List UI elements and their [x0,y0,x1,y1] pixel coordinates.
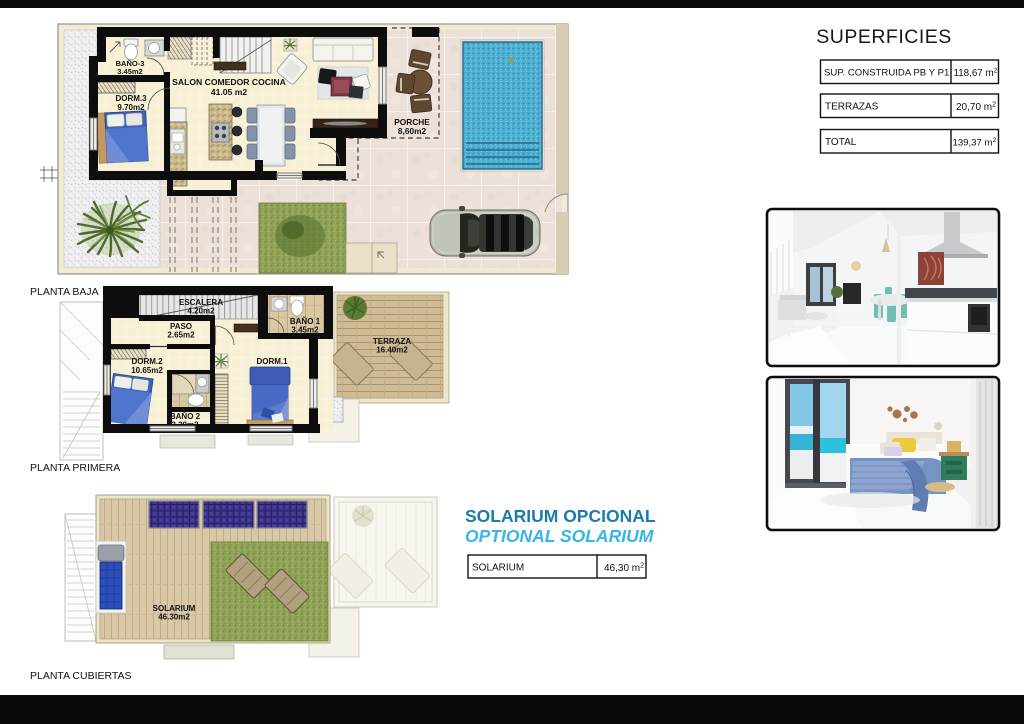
svg-text:DORM.3: DORM.3 [115,94,147,103]
svg-text:DORM.1: DORM.1 [256,357,288,366]
svg-text:PLANTA PRIMERA: PLANTA PRIMERA [30,462,120,474]
svg-text:SOLARIUM OPCIONAL: SOLARIUM OPCIONAL [465,506,656,526]
svg-text:46,30 m2: 46,30 m2 [604,563,644,575]
svg-text:DORM.2: DORM.2 [131,357,163,366]
svg-text:OPTIONAL SOLARIUM: OPTIONAL SOLARIUM [465,526,654,546]
svg-text:TOTAL: TOTAL [825,137,857,148]
svg-text:118,67 m2: 118,67 m2 [954,68,998,80]
svg-text:PLANTA CUBIERTAS: PLANTA CUBIERTAS [30,670,132,682]
svg-text:2.65m2: 2.65m2 [167,331,195,340]
svg-text:16.40m2: 16.40m2 [376,346,408,355]
svg-text:10.65m2: 10.65m2 [131,366,163,375]
svg-text:20,70 m2: 20,70 m2 [956,102,996,114]
svg-text:3.45m2: 3.45m2 [117,67,142,76]
svg-text:8,60m2: 8,60m2 [398,126,427,136]
svg-text:4.20m2: 4.20m2 [187,307,215,316]
svg-text:PLANTA BAJA: PLANTA BAJA [30,286,99,298]
svg-text:3.45m2: 3.45m2 [291,326,319,335]
svg-text:46.30m2: 46.30m2 [158,613,190,622]
svg-text:SUP. CONSTRUIDA PB Y P1: SUP. CONSTRUIDA PB Y P1 [824,68,949,79]
svg-text:41.05 m2: 41.05 m2 [211,87,248,97]
svg-text:SALON COMEDOR COCINA: SALON COMEDOR COCINA [172,77,286,87]
svg-text:SOLARIUM: SOLARIUM [472,563,524,574]
svg-text:139,37 m2: 139,37 m2 [953,137,997,149]
svg-text:TERRAZAS: TERRAZAS [825,102,879,113]
svg-text:SUPERFICIES: SUPERFICIES [816,26,952,48]
